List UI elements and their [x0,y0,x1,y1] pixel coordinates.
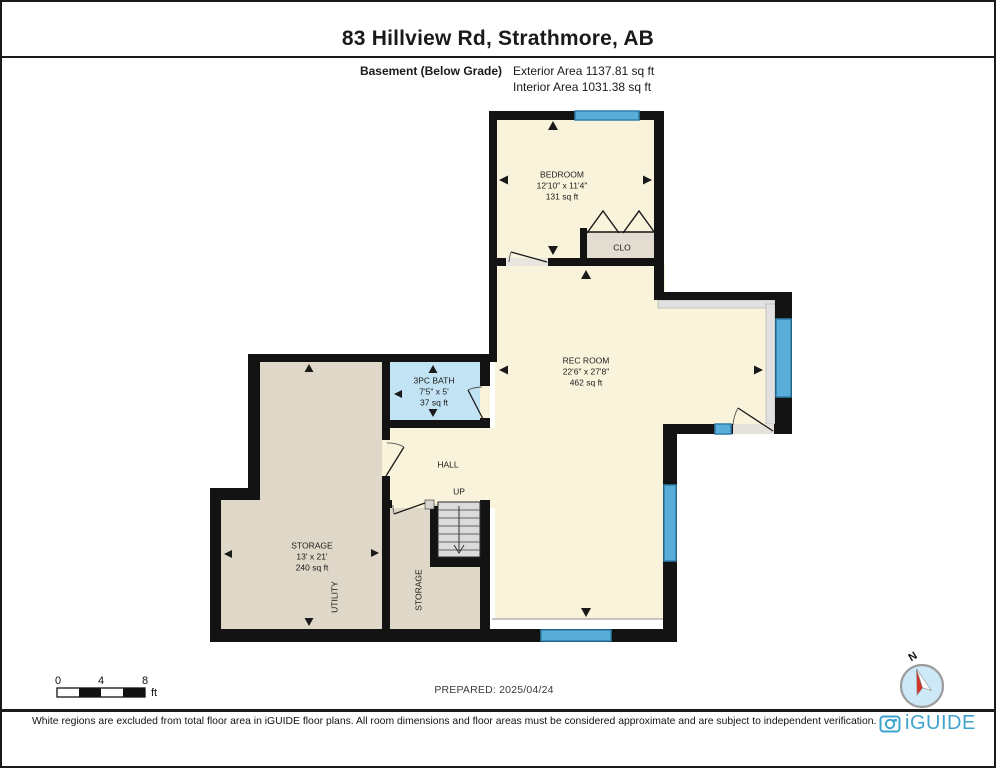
footer-disclaimer: White regions are excluded from total fl… [32,716,876,727]
iguide-logo: iGUIDE [879,712,976,735]
window-rec-lower-icon [664,485,676,561]
scale-unit: ft [151,687,157,699]
room-label-utility: UTILITY [329,581,340,613]
iguide-logo-text: iGUIDE [905,712,976,735]
scale-bar [57,688,145,697]
interior-area: Interior Area 1031.38 sq ft [513,80,651,94]
room-label-bath: 3PC BATH 7'5" x 5' 37 sq ft [414,375,455,408]
floorplan-page: 83 Hillview Rd, Strathmore, AB Basement … [0,0,996,768]
header-divider [2,56,994,58]
scale-label-0: 0 [55,675,61,687]
page-title: 83 Hillview Rd, Strathmore, AB [2,27,994,51]
room-label-storage2: STORAGE [413,569,424,610]
room-label-hall: HALL [437,459,458,470]
room-label-rec-room: REC ROOM 22'6" x 27'8" 462 sq ft [563,355,610,388]
window-rec-bottom-icon [541,630,611,641]
compass-icon [901,665,943,707]
footer-divider [2,709,994,712]
iguide-camera-icon [879,713,902,734]
floor-label: Basement (Below Grade) [262,64,502,78]
room-label-closet: CLO [613,242,630,253]
window-rec-small-icon [715,424,731,434]
staircase [438,502,480,557]
scale-label-4: 4 [98,675,104,687]
window-bedroom-icon [575,111,639,120]
stairs-up-label: UP [453,486,465,497]
excluded-region [492,619,663,630]
floorplan-drawing [2,2,996,768]
window-rec-right-icon [776,319,791,397]
room-label-storage: STORAGE 13' x 21' 240 sq ft [291,540,332,573]
scale-label-8: 8 [142,675,148,687]
prepared-date: PREPARED: 2025/04/24 [434,684,553,696]
room-label-bedroom: BEDROOM 12'10" x 11'4" 131 sq ft [537,169,588,202]
exterior-area: Exterior Area 1137.81 sq ft [513,64,654,78]
